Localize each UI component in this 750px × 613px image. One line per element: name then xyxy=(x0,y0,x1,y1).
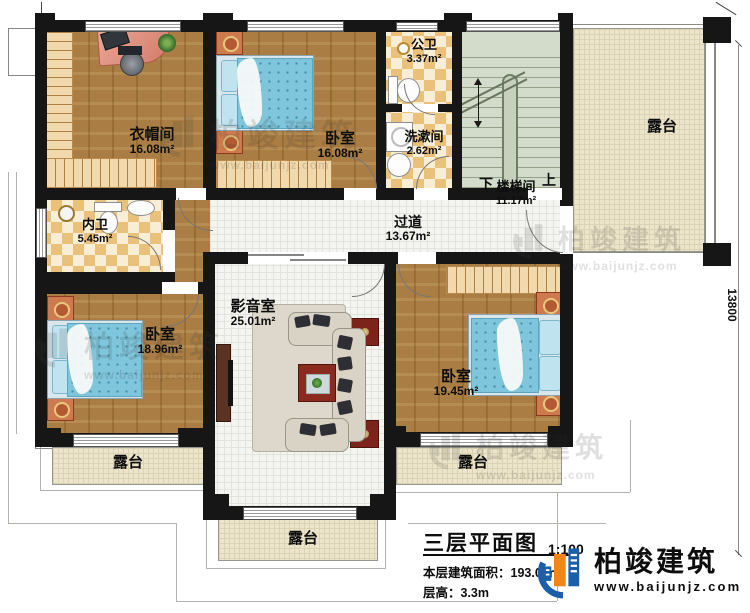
wall xyxy=(203,20,216,200)
nightstand xyxy=(47,296,74,321)
door-opening xyxy=(414,188,448,200)
nightstand xyxy=(47,396,74,421)
wall xyxy=(384,252,396,520)
sofa-pillow xyxy=(337,356,353,371)
wall xyxy=(35,188,460,200)
window xyxy=(396,22,438,31)
sofa-chaise xyxy=(285,418,349,452)
pillar xyxy=(203,494,229,520)
nightstand xyxy=(216,31,243,55)
boundary-line xyxy=(176,523,177,601)
title-block-top-line xyxy=(408,523,606,524)
room-label-cloakroom: 衣帽间 16.08m² xyxy=(129,126,174,157)
boundary-line xyxy=(392,492,630,493)
monitor xyxy=(118,46,142,55)
sofa-pillow xyxy=(312,314,330,327)
terrace-column xyxy=(703,17,731,43)
stair-down-label: 下 xyxy=(479,176,493,192)
stair-up-label: 上 xyxy=(542,172,556,188)
stair-arrow-up xyxy=(474,78,482,85)
wardrobe xyxy=(446,266,564,294)
brand-logo-icon xyxy=(536,543,590,599)
door-opening xyxy=(344,188,376,200)
wardrobe xyxy=(45,158,157,188)
window xyxy=(243,507,357,520)
door-opening xyxy=(163,230,175,272)
brand-footer: 柏竣建筑 www.baijunjz.com xyxy=(536,543,741,599)
shower-head xyxy=(58,205,75,222)
leader-mark xyxy=(716,2,737,16)
door-opening xyxy=(398,252,436,264)
window xyxy=(73,434,179,447)
window xyxy=(466,21,560,32)
sink xyxy=(127,200,155,216)
room-label-bedroom-right: 卧室 19.45m² xyxy=(434,368,479,399)
pillar xyxy=(370,494,396,520)
window xyxy=(420,433,548,447)
pillar xyxy=(35,13,55,32)
terrace-railing xyxy=(714,24,716,266)
floor-height-text: 层高：3.3m xyxy=(423,582,489,601)
room-label-stairwell: 楼梯间 11.17m² xyxy=(496,180,536,208)
window xyxy=(85,21,181,32)
boundary-line xyxy=(630,420,631,492)
nightstand xyxy=(216,130,243,154)
stair-direction-arrow xyxy=(478,84,479,122)
room-label-public-bath: 公卫 3.37m² xyxy=(407,38,442,66)
terrace-label: 露台 xyxy=(113,454,143,471)
plan-title: 三层平面图 xyxy=(423,527,538,557)
terrace-label: 露台 xyxy=(288,530,318,547)
floor-plan: 13800 xyxy=(0,0,750,613)
tv xyxy=(228,360,233,406)
brand-name: 柏竣建筑 xyxy=(594,548,741,576)
window xyxy=(247,21,344,32)
window xyxy=(36,208,47,258)
bed xyxy=(216,55,314,131)
stair-arrow-down xyxy=(474,121,482,128)
boundary-line xyxy=(176,601,557,602)
bed xyxy=(47,320,143,399)
brand-url: www.baijunjz.com xyxy=(594,579,741,594)
room-label-private-bath: 内卫 5.45m² xyxy=(78,218,113,246)
plant xyxy=(158,34,176,52)
sofa-pillow xyxy=(299,423,317,436)
desk-chair xyxy=(120,52,144,76)
room-label-media-room: 影音室 25.01m² xyxy=(230,298,275,329)
terrace-column xyxy=(703,243,731,266)
terrace-railing xyxy=(573,24,714,25)
room-label-hallway: 过道 13.67m² xyxy=(386,214,431,244)
terrace-label: 露台 xyxy=(647,118,677,135)
pillar xyxy=(384,426,406,447)
boundary-line xyxy=(16,172,17,434)
closet xyxy=(45,30,73,160)
exterior-ledge xyxy=(8,28,36,76)
corridor-wood-floor xyxy=(170,250,206,286)
pillar xyxy=(548,426,573,447)
sofa-pillow xyxy=(337,335,353,351)
boundary-line xyxy=(8,172,9,524)
sliding-door-opening xyxy=(248,252,348,264)
bed xyxy=(468,314,564,396)
sofa-pillow xyxy=(337,378,353,393)
room-label-bedroom-left: 卧室 18.96m² xyxy=(138,326,183,357)
pillar xyxy=(178,428,205,447)
wardrobe xyxy=(216,160,332,189)
wall xyxy=(35,272,175,282)
terrace-railing xyxy=(573,252,714,253)
pillar xyxy=(35,428,61,447)
room-label-washroom: 洗漱间 2.62m² xyxy=(404,130,443,158)
boundary-line xyxy=(8,523,176,524)
door-opening xyxy=(162,282,198,294)
terrace-label: 露台 xyxy=(458,454,488,471)
pillar xyxy=(203,13,233,32)
terrace-right-floor xyxy=(573,28,705,252)
pillar xyxy=(558,13,573,32)
dimension-13800: 13800 xyxy=(725,278,739,332)
room-label-bedroom-top: 卧室 16.08m² xyxy=(318,130,363,161)
coffee-table xyxy=(298,364,336,402)
wall xyxy=(203,252,215,520)
